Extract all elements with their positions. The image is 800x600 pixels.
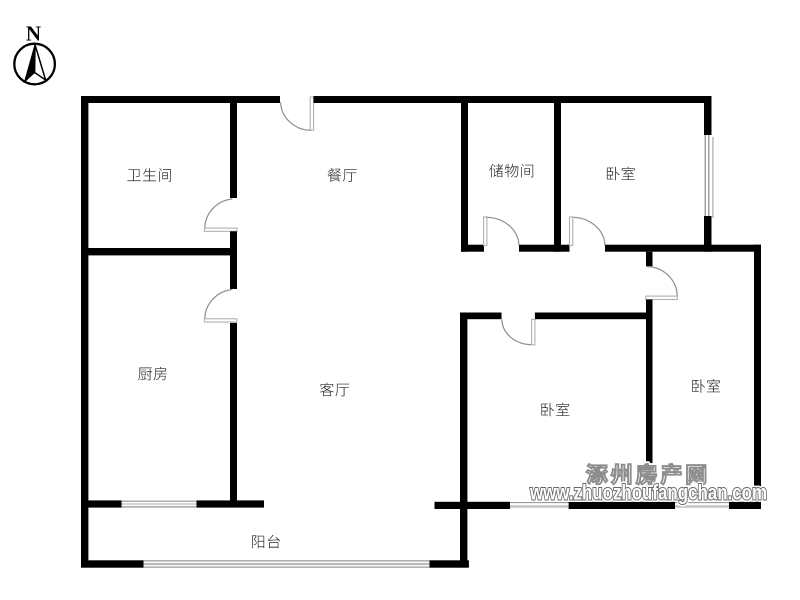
svg-text:www.zhuozhoufangchan.com: www.zhuozhoufangchan.com bbox=[529, 482, 767, 505]
svg-text:N: N bbox=[26, 22, 41, 46]
